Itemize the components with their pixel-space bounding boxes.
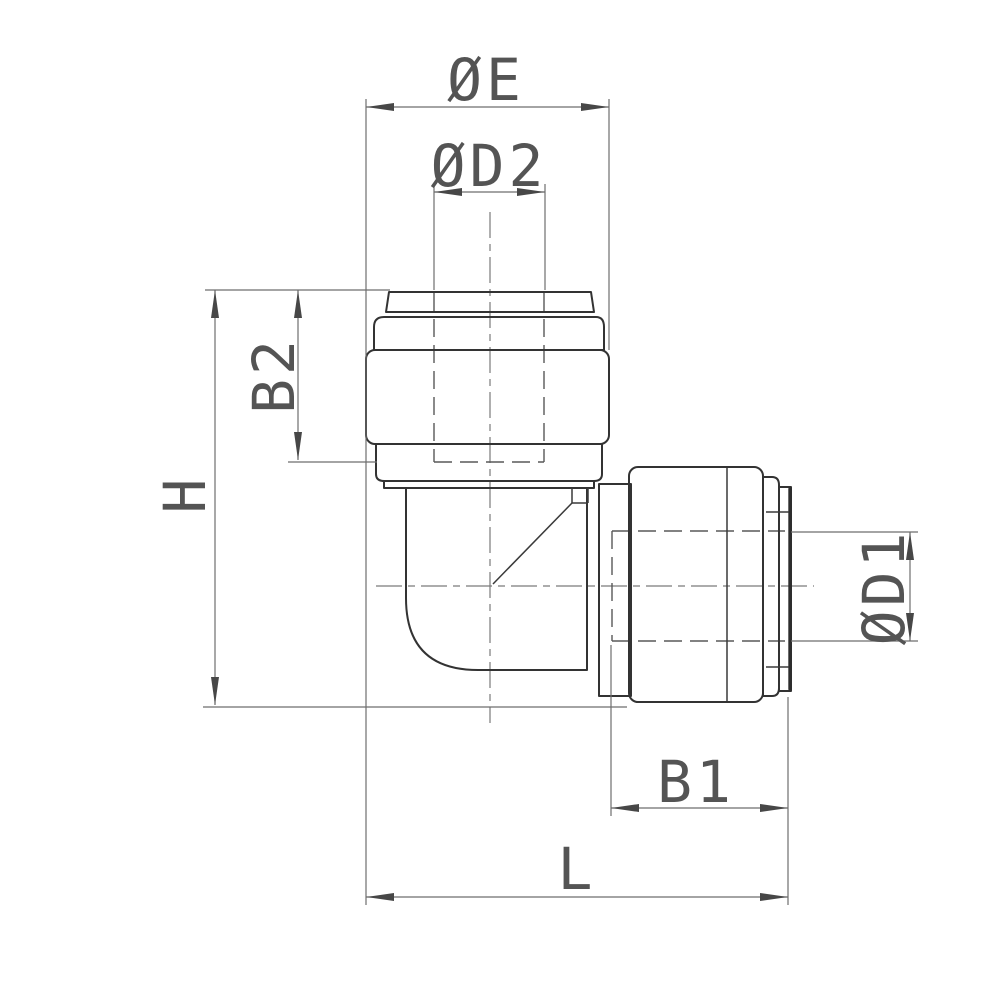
elbow-inner-corner-square	[572, 488, 588, 503]
elbow-diagonal-line	[493, 503, 572, 584]
elbow-fitting-technical-drawing: ØE ØD2 B2 H ØD1 B1 L	[0, 0, 1000, 1000]
arrow-h-top	[211, 290, 219, 318]
arrow-dia-e-left	[366, 103, 394, 111]
technical-drawing-page: ØE ØD2 B2 H ØD1 B1 L	[0, 0, 1000, 1000]
arrow-l-left	[366, 893, 394, 901]
arrow-b1-right	[760, 804, 788, 812]
top-step	[384, 481, 594, 488]
dimension-labels: ØE ØD2 B2 H ØD1 B1 L	[151, 46, 918, 903]
fitting-outline	[366, 292, 791, 702]
label-dia-e: ØE	[447, 46, 525, 114]
label-b1: B1	[657, 748, 735, 816]
top-collar	[366, 350, 609, 444]
arrow-dia-e-right	[581, 103, 609, 111]
arrow-b1-left	[611, 804, 639, 812]
arrow-h-bottom	[211, 677, 219, 705]
right-collar	[629, 467, 763, 702]
extension-lines	[203, 99, 918, 905]
label-l: L	[558, 835, 597, 903]
right-neck	[599, 484, 631, 696]
dimension-lines	[215, 107, 910, 897]
label-b2: B2	[240, 336, 308, 414]
top-ring	[374, 317, 604, 350]
arrow-b2-top	[294, 290, 302, 318]
arrow-l-right	[760, 893, 788, 901]
label-dia-d2: ØD2	[431, 132, 548, 200]
arrow-b2-bottom	[294, 432, 302, 460]
label-h: H	[151, 475, 219, 514]
arrowheads	[211, 103, 914, 901]
label-dia-d1: ØD1	[850, 529, 918, 646]
